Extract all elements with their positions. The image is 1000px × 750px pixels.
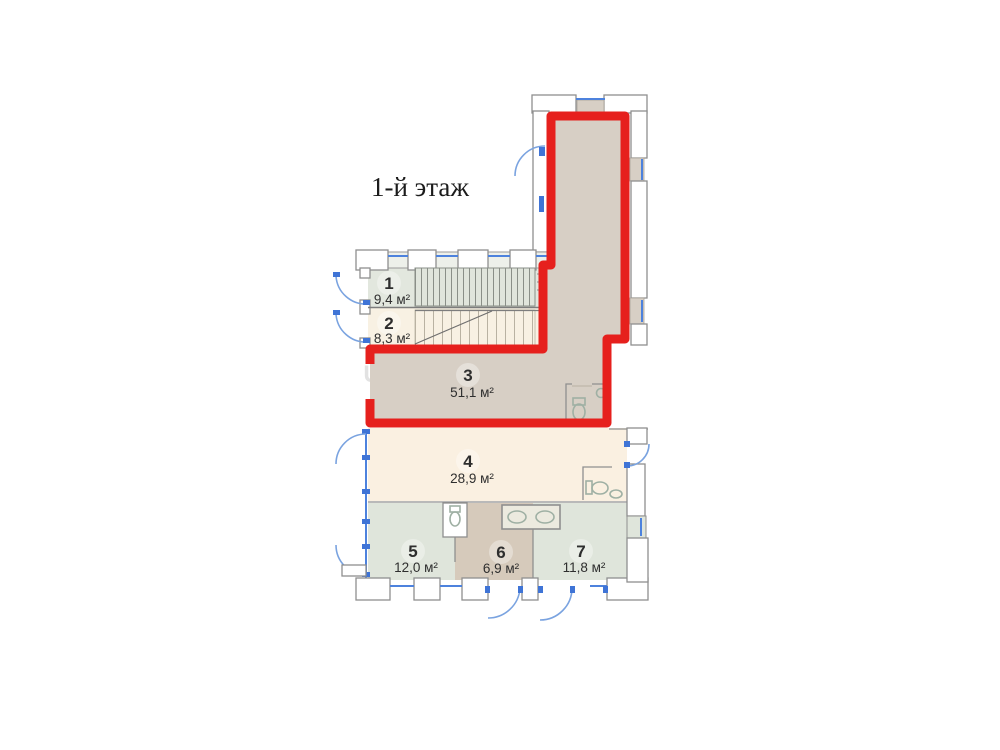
room-1-area-label: 9,4 м²: [374, 292, 411, 307]
room-4-area: [368, 428, 627, 501]
room-5-number: 5: [408, 542, 417, 561]
floor-plan-page: 1-й этаж U S5D.RU: [0, 0, 1000, 750]
floor-plan-drawing: 1-й этаж U S5D.RU: [0, 0, 1000, 750]
room-5-area-label: 12,0 м²: [394, 560, 438, 575]
rooms-1-2-block: [333, 250, 548, 348]
room-7-number: 7: [576, 542, 585, 561]
room-1-number: 1: [384, 274, 393, 293]
door-arc-room4-right: [627, 444, 649, 466]
room-4-area-label: 28,9 м²: [450, 471, 494, 486]
room-2-area-label: 8,3 м²: [374, 331, 411, 346]
room-3-area-label: 51,1 м²: [450, 385, 494, 400]
bottom-wall: [356, 578, 648, 620]
window-left-mark: [539, 196, 544, 212]
left-glazing: [336, 429, 370, 578]
room-3-number: 3: [463, 366, 472, 385]
room-4-number: 4: [463, 452, 473, 471]
page-title: 1-й этаж: [371, 172, 469, 202]
room-6-area-label: 6,9 м²: [483, 561, 520, 576]
right-wall: [624, 428, 649, 582]
door-arc-bottom-a: [488, 588, 520, 618]
door-arc-room4-left: [336, 434, 366, 464]
sink-room: [502, 505, 560, 529]
room-4-block: [368, 428, 648, 501]
door-arc-bottom-b: [540, 588, 572, 620]
wc-closet: [443, 503, 467, 537]
door-jamb: [539, 147, 545, 156]
room-6-number: 6: [496, 543, 505, 562]
room-7-area-label: 11,8 м²: [563, 560, 606, 575]
